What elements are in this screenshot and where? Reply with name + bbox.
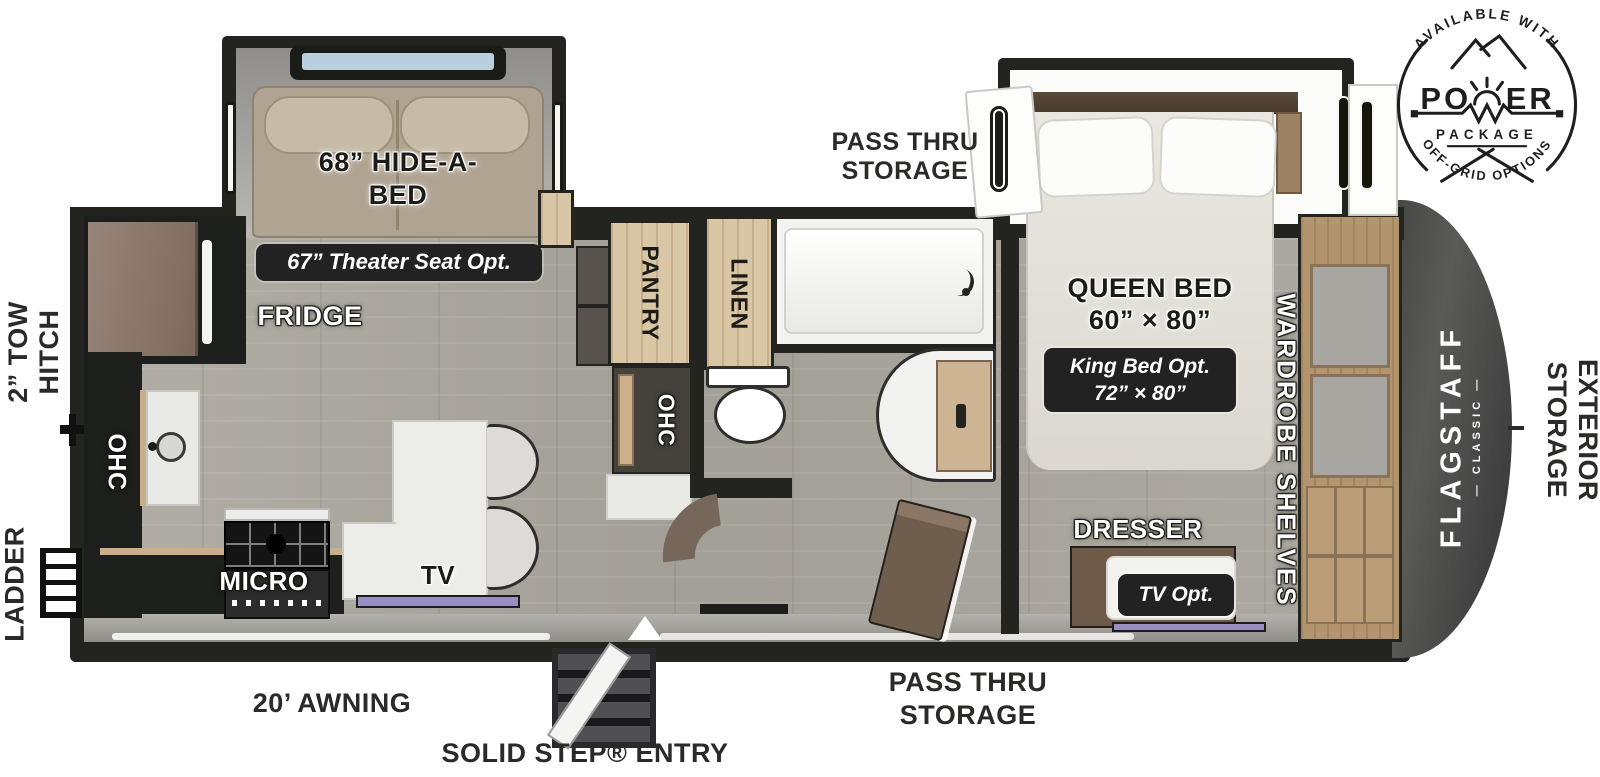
awning-rail-right [660, 633, 1134, 640]
pantry-ohc-wood-slat [618, 374, 634, 466]
svg-text:OFF-GRID OPTIONS: OFF-GRID OPTIONS [1419, 136, 1554, 183]
slideout-side-window-right [552, 102, 563, 194]
slideout-side-window-left [225, 102, 236, 194]
micro-label: MICRO [204, 566, 324, 597]
pillow-left [1037, 116, 1156, 198]
pantry-ohc-label: OHC [653, 394, 680, 447]
tow-hitch-icon [60, 414, 84, 446]
theater-seat-option-badge: 67” Theater Seat Opt. [256, 244, 542, 281]
awning-rail-left [112, 633, 550, 640]
bedroom-step-wall [1001, 220, 1019, 634]
kitchen-ohc-label: OHC [102, 433, 131, 490]
bedroom-tv [1112, 622, 1266, 632]
brand-logo: FLAGSTAFF [1436, 324, 1469, 548]
dresser-label: DRESSER [1058, 514, 1218, 545]
svg-text:PACKAGE: PACKAGE [1436, 127, 1538, 142]
fridge-label: FRIDGE [248, 301, 372, 332]
entry-label: SOLID STEP® ENTRY [430, 738, 740, 769]
ladder-icon [40, 548, 82, 618]
dinette-table-foot [342, 522, 396, 600]
pillow-right [1159, 116, 1278, 198]
headboard [1026, 92, 1298, 114]
pass-thru-storage-top-label: PASS THRU STORAGE [805, 128, 1005, 186]
fridge-door-gap [202, 240, 212, 344]
door-threshold [700, 604, 788, 614]
tv-option-badge: TV Opt. [1118, 574, 1234, 616]
king-bed-option-badge: King Bed Opt. 72” × 80” [1044, 348, 1236, 412]
ladder-label: LADDER [0, 526, 31, 642]
floorplan-canvas: FLAGSTAFF — CLASSIC — 68” HIDE-A- BED 67… [0, 0, 1600, 777]
entry-threshold-arrow [628, 616, 662, 640]
kitchen-sink [156, 432, 186, 462]
wardrobe-cubby-bottom [1310, 374, 1390, 478]
tv-label: TV [408, 560, 468, 591]
overhead-shelf [538, 190, 574, 248]
tow-hitch-label: 2” TOW HITCH [3, 301, 65, 403]
fridge [88, 222, 198, 356]
exterior-storage-label: EXTERIOR STORAGE [1541, 359, 1600, 501]
wardrobe-cubby-top [1310, 264, 1390, 368]
pantry-label: PANTRY [637, 246, 664, 341]
shower-head-dot [962, 288, 970, 296]
compartment-window-right [1360, 100, 1374, 190]
linen-label: LINEN [726, 258, 753, 330]
bathroom-left-wall [690, 238, 704, 490]
wardrobe-drawers [1306, 486, 1394, 624]
bottom-wall [70, 642, 1410, 662]
toilet-tank [706, 366, 790, 388]
stove-back-edge [224, 508, 330, 521]
slideout-window-glass [302, 53, 494, 70]
brand-series: — CLASSIC — [1471, 376, 1483, 496]
hide-a-bed-label: 68” HIDE-A- BED [296, 146, 500, 212]
kitchen-faucet [148, 442, 157, 451]
vanity-faucet [956, 404, 966, 428]
queen-bed-label: QUEEN BED 60” × 80” [1030, 272, 1270, 336]
wardrobe-shelves-label: WARDROBE SHELVES [1271, 293, 1302, 606]
bed-nightstand [1276, 112, 1302, 194]
living-tv [356, 595, 520, 608]
cap-marker-line [1508, 426, 1524, 430]
power-package-badge: AVAILABLE WITH OFF-GRID OPTIONS PO ER PA… [1384, 2, 1590, 208]
sun-icon [1472, 78, 1503, 104]
stove-dots [232, 600, 324, 606]
pantry-drawers [576, 246, 612, 366]
toilet-bowl [714, 386, 786, 444]
awning-label: 20’ AWNING [222, 688, 442, 719]
stove-burner-knob [266, 534, 286, 554]
svg-text:PO: PO [1420, 81, 1471, 116]
svg-text:ER: ER [1506, 81, 1555, 116]
mountains-icon [1452, 36, 1525, 68]
pass-thru-storage-bottom-label: PASS THRU STORAGE [858, 666, 1078, 732]
